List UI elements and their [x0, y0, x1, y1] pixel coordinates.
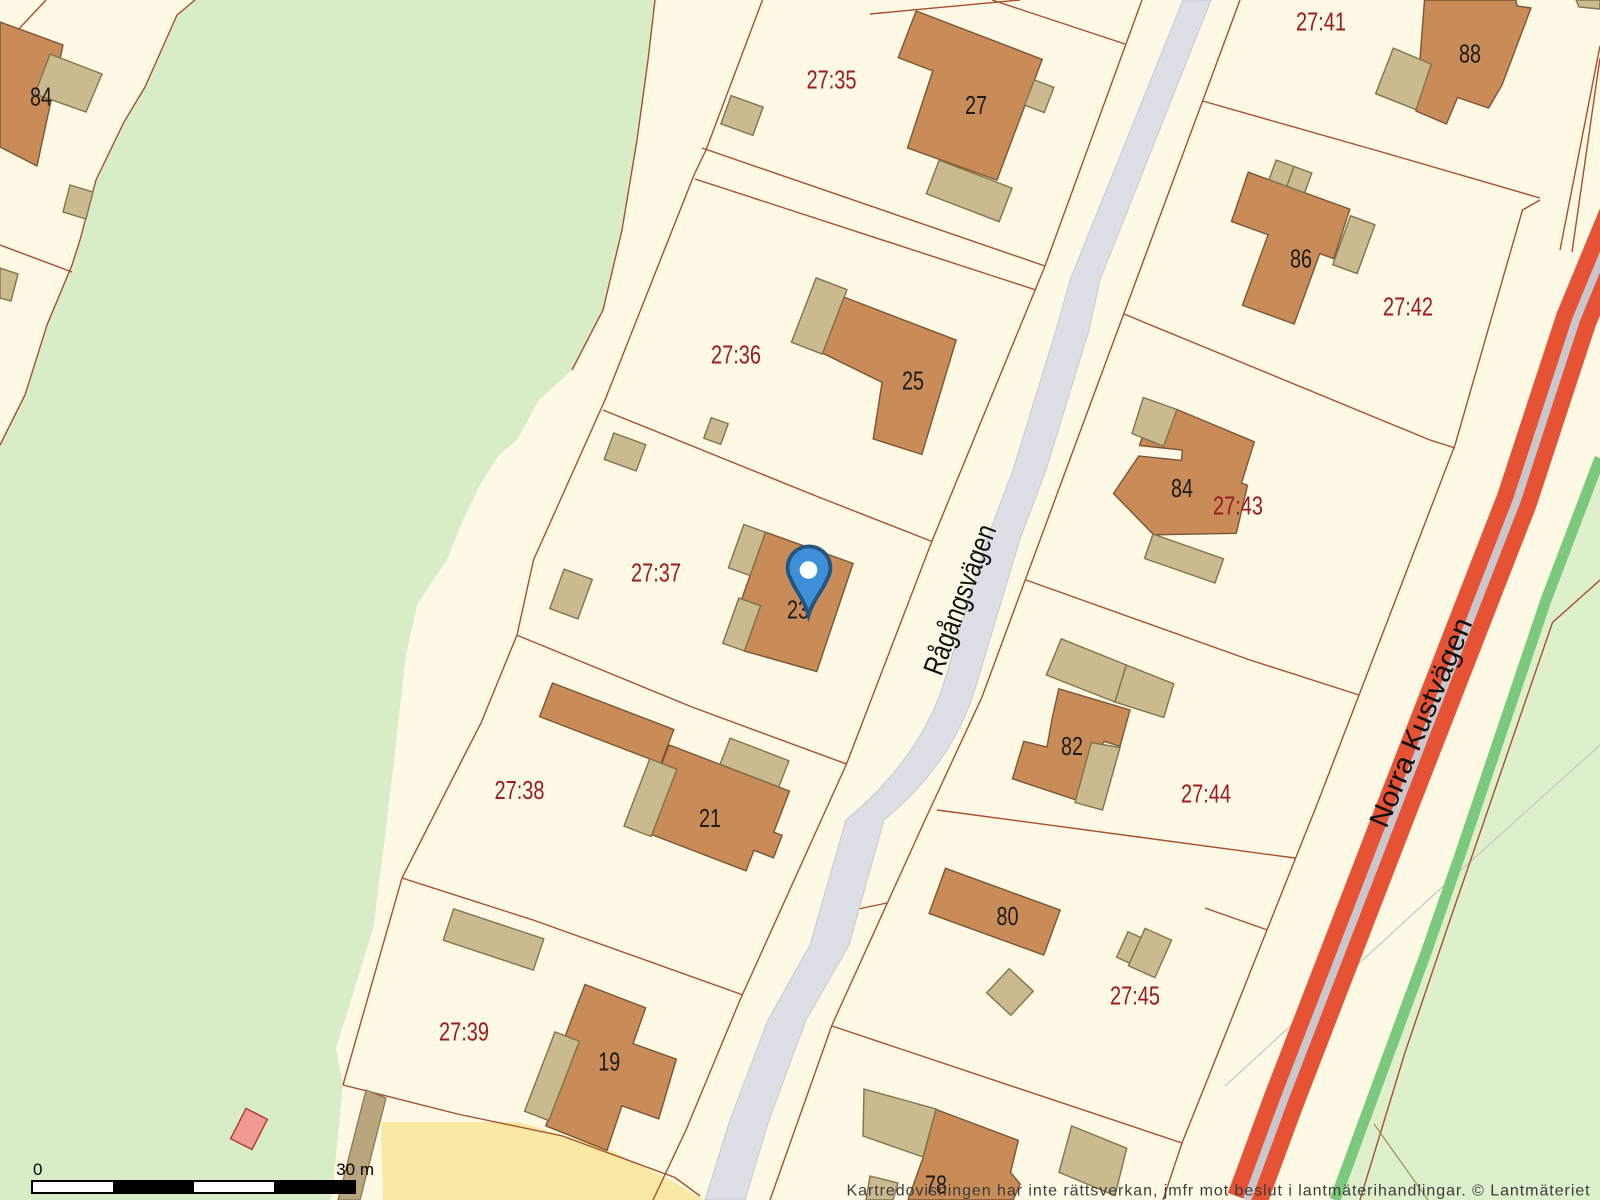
- svg-text:27:36: 27:36: [711, 340, 761, 370]
- svg-text:84: 84: [30, 82, 52, 112]
- svg-text:27:43: 27:43: [1213, 491, 1263, 521]
- svg-text:27:42: 27:42: [1383, 292, 1433, 322]
- svg-text:27:38: 27:38: [495, 775, 545, 805]
- svg-text:84: 84: [1171, 473, 1193, 503]
- svg-text:27:45: 27:45: [1110, 981, 1160, 1011]
- svg-text:0: 0: [33, 1160, 42, 1179]
- svg-text:27: 27: [965, 90, 987, 120]
- svg-text:30 m: 30 m: [336, 1160, 374, 1179]
- svg-text:27:41: 27:41: [1296, 7, 1346, 37]
- svg-text:80: 80: [997, 901, 1019, 931]
- svg-text:86: 86: [1290, 244, 1312, 274]
- svg-text:88: 88: [1459, 39, 1481, 69]
- svg-text:21: 21: [699, 803, 721, 833]
- svg-text:27:37: 27:37: [631, 558, 681, 588]
- svg-text:82: 82: [1061, 731, 1083, 761]
- svg-text:27:44: 27:44: [1181, 779, 1231, 809]
- svg-text:27:35: 27:35: [807, 65, 857, 95]
- svg-text:19: 19: [598, 1047, 620, 1077]
- svg-text:25: 25: [902, 366, 924, 396]
- svg-text:27:39: 27:39: [439, 1017, 489, 1047]
- svg-text:Kartredovisningen har inte rät: Kartredovisningen har inte rättsverkan, …: [847, 1183, 1591, 1200]
